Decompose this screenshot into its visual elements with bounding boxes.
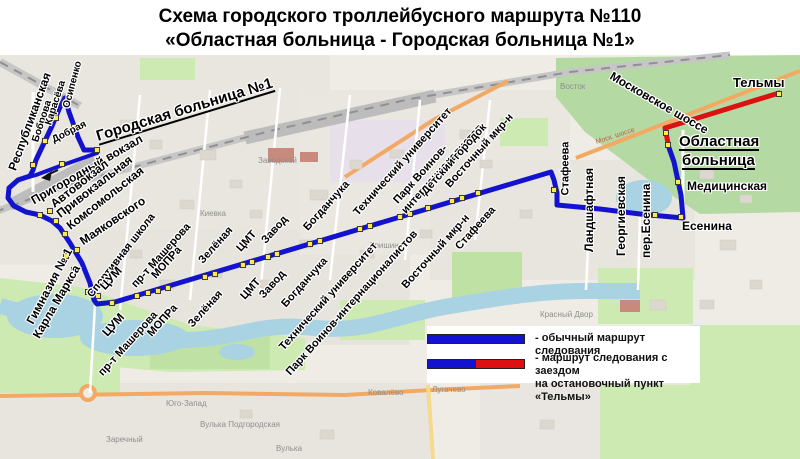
stop-marker-Областная больница bbox=[665, 142, 671, 148]
stop-marker-Городская больница №1 bbox=[94, 147, 100, 153]
map-label-Восток: Восток bbox=[560, 83, 585, 91]
stop-label-Тельмы: Тельмы bbox=[733, 76, 785, 89]
stop-marker-Восточный мкр-н bbox=[449, 198, 455, 204]
legend-swatch-telmy-route bbox=[427, 359, 525, 369]
map-label-Красный Двор: Красный Двор bbox=[540, 311, 593, 319]
stop-marker-Парк Воинов-интернационалистов bbox=[397, 214, 403, 220]
stop-marker-ЦУМ bbox=[109, 300, 115, 306]
map-label-Лугачево: Лугачево bbox=[432, 386, 466, 394]
stop-marker-Завод bbox=[265, 254, 271, 260]
legend-label-telmy-line2: на остановочный пункт «Тельмы» bbox=[535, 378, 700, 404]
legend-label-telmy-line1: - маршрут следования с заездом bbox=[535, 352, 700, 378]
stop-marker-ЦМТ bbox=[249, 259, 255, 265]
stop-marker-Богданчука bbox=[317, 238, 323, 244]
route-map-page: Схема городского троллейбусного маршрута… bbox=[0, 0, 800, 459]
stop-marker-Медицинская bbox=[675, 179, 681, 185]
stop-marker-Привокзальная bbox=[53, 218, 59, 224]
title-line-1: Схема городского троллейбусного маршрута… bbox=[0, 5, 800, 29]
map-label-Вулька Подгородская: Вулька Подгородская bbox=[200, 421, 280, 429]
stop-marker-МОПРа bbox=[155, 288, 161, 294]
stop-label-Стафеева: Стафеева bbox=[561, 142, 572, 196]
legend-label-telmy-route: - маршрут следования с заездом на остано… bbox=[535, 352, 700, 404]
stop-marker-Детский городок bbox=[425, 205, 431, 211]
stop-label-Областная: Областная bbox=[679, 134, 759, 151]
title-line-2: «Областная больница - Городская больница… bbox=[0, 29, 800, 53]
stop-marker-пр-т Машерова bbox=[134, 293, 140, 299]
stop-label-больница: больница bbox=[682, 153, 755, 170]
map-label-Вулька: Вулька bbox=[276, 445, 302, 453]
stop-marker-Автовокзал bbox=[47, 208, 53, 214]
stop-label-Медицинская: Медицинская bbox=[687, 180, 767, 192]
stop-marker-Богданчука bbox=[307, 241, 313, 247]
stop-label-Есенина: Есенина bbox=[682, 220, 732, 232]
map-label-Юго-Запад: Юго-Запад bbox=[166, 400, 207, 408]
stop-marker-Зелёная bbox=[202, 274, 208, 280]
stop-marker-Восточный мкр-н bbox=[459, 195, 465, 201]
stop-marker-Стафеева bbox=[475, 190, 481, 196]
map-label-Заречный: Заречный bbox=[106, 436, 143, 444]
stop-marker-развилка Тельмы bbox=[663, 130, 669, 136]
stop-marker-ЦМТ bbox=[240, 262, 246, 268]
stop-marker-Республиканская bbox=[30, 162, 36, 168]
stop-label-пер.Есенина: пер.Есенина bbox=[640, 184, 652, 258]
stop-marker-Пригородный вокзал bbox=[37, 212, 43, 218]
stop-label-Ландшафтная: Ландшафтная bbox=[583, 168, 595, 252]
stop-marker-Пригородный вокзал bbox=[59, 161, 65, 167]
stop-marker-Технический университет bbox=[367, 223, 373, 229]
stop-label-Георгиевская: Георгиевская bbox=[615, 176, 627, 256]
page-title: Схема городского троллейбусного маршрута… bbox=[0, 5, 800, 53]
stop-marker-МОПРа bbox=[165, 285, 171, 291]
stop-marker-Стафеева bbox=[551, 187, 557, 193]
stop-marker-Комсомольская bbox=[62, 231, 68, 237]
stop-marker-пр-т Машерова bbox=[145, 290, 151, 296]
stop-marker-Тельмы bbox=[776, 91, 782, 97]
map-label-Киевка: Киевка bbox=[200, 210, 226, 218]
map-label-Ковалёво: Ковалёво bbox=[368, 389, 403, 397]
stop-marker-Завод bbox=[274, 251, 280, 257]
legend-panel: - обычный маршрут следования - маршрут с… bbox=[427, 326, 700, 383]
legend-swatch-normal-route bbox=[427, 334, 525, 344]
map-label-Заводской: Заводской bbox=[258, 157, 297, 165]
stop-marker-Боброва bbox=[42, 138, 48, 144]
stop-marker-Зелёная bbox=[212, 271, 218, 277]
stop-marker-Технический университет bbox=[357, 226, 363, 232]
